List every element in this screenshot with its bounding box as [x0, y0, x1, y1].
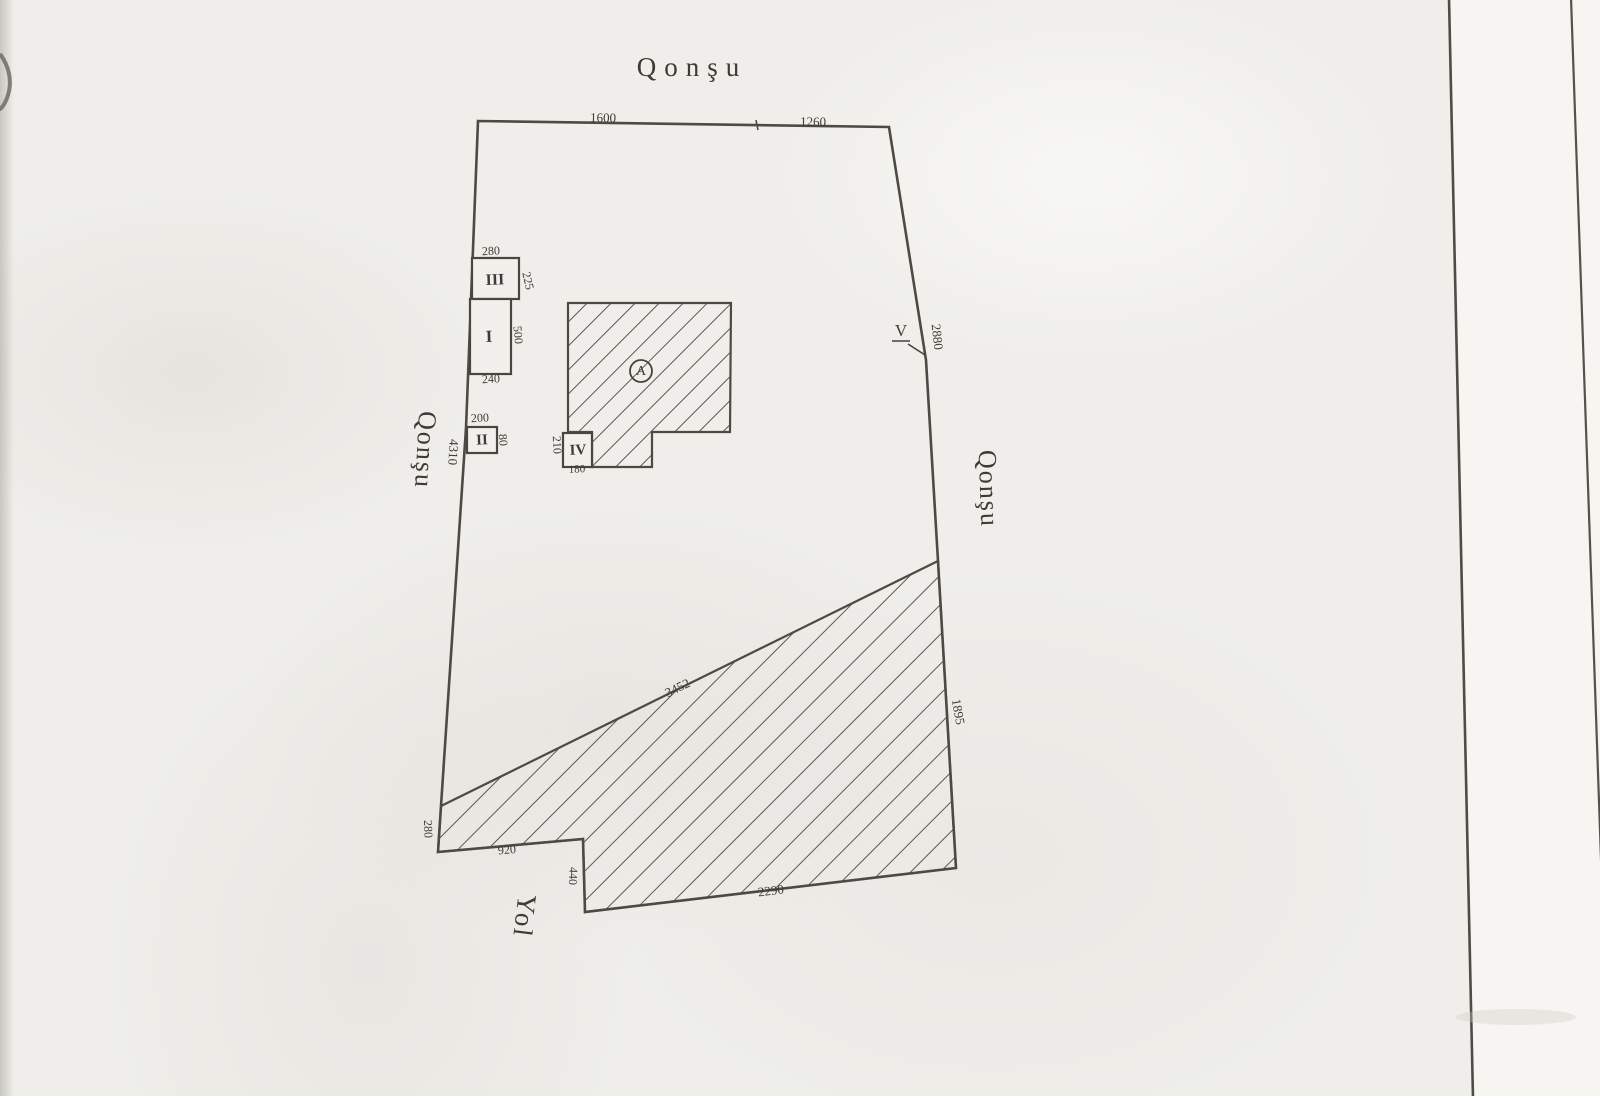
- dim-structure-ii-side: 80: [496, 433, 511, 446]
- site-plan-drawing: A III 280 225 I 500 240 II 200 80 IV 210…: [0, 0, 1600, 1096]
- dim-bottom-left: 920: [497, 842, 516, 858]
- dim-structure-ii-top: 200: [471, 410, 490, 425]
- neighbor-label-right: Qonşu: [973, 449, 1005, 528]
- neighbor-label-left: Qonşu: [409, 410, 442, 489]
- dim-right-lower: 1895: [949, 698, 968, 726]
- structure-ii-label: II: [476, 432, 488, 448]
- dim-structure-i-side: 500: [510, 325, 526, 344]
- neighbor-label-top: Qonşu: [637, 52, 748, 82]
- structure-iii-label: III: [485, 271, 504, 289]
- dim-bottom: 2290: [757, 881, 785, 899]
- dim-structure-iv-bottom: 180: [568, 463, 586, 476]
- dim-left-side: 4310: [445, 439, 461, 466]
- scan-artifact-top-left: [0, 54, 10, 110]
- dim-structure-iii-top: 280: [482, 243, 501, 258]
- dimension-tick-top: [756, 120, 758, 130]
- dim-corner: 280: [421, 820, 436, 838]
- building-a-label: A: [636, 364, 647, 379]
- dim-right-upper: 2880: [929, 323, 947, 350]
- dim-top-segment-1: 1600: [590, 110, 616, 125]
- dim-structure-iii-side: 225: [519, 270, 537, 291]
- hatched-area-lower: [438, 561, 956, 912]
- dim-structure-i-bottom: 240: [482, 371, 501, 386]
- dim-top-segment-2: 1260: [800, 114, 826, 129]
- dim-structure-iv-side: 210: [550, 436, 565, 455]
- scanned-document-page: A III 280 225 I 500 240 II 200 80 IV 210…: [0, 0, 1600, 1096]
- structure-iv-label: IV: [569, 442, 586, 459]
- point-v-label: V: [895, 321, 908, 340]
- dim-step: 440: [566, 867, 581, 885]
- road-label: Yol: [507, 893, 542, 940]
- scan-artifact-smudge: [1456, 1009, 1576, 1025]
- structure-i-label: I: [485, 327, 493, 346]
